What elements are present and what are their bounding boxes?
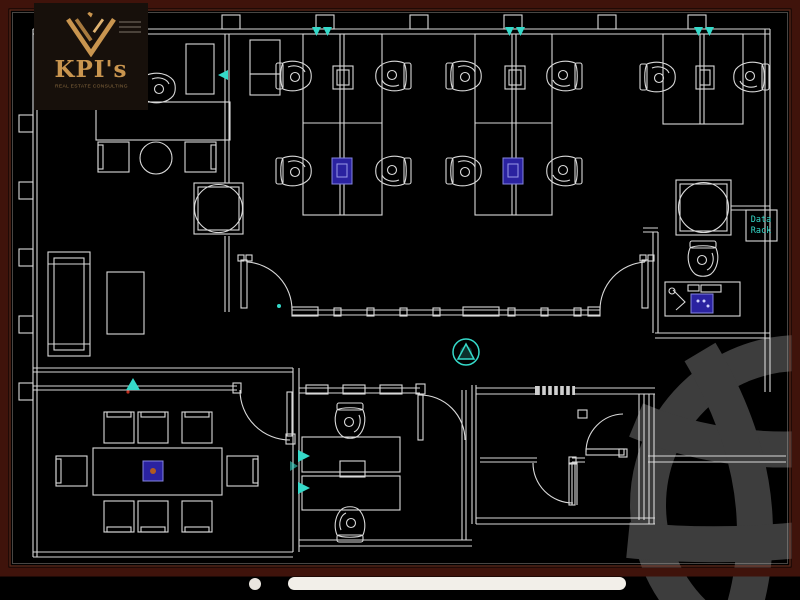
monitor-highlight	[691, 294, 713, 313]
logo-subtitle: REAL ESTATE CONSULTING	[55, 84, 128, 89]
home-indicator[interactable]	[288, 577, 626, 590]
logo-title: KPI's	[54, 58, 127, 81]
screenshot-stage: Data Rack KPI's REAL ESTATE CONSULTING	[0, 0, 800, 600]
kpi-monogram-icon	[58, 11, 124, 57]
pedestal-highlight	[332, 158, 352, 184]
data-rack-line2: Rack	[751, 226, 771, 236]
data-rack-line1: Data	[751, 215, 771, 225]
marker-dot	[277, 304, 281, 308]
marker-dot-red	[126, 390, 129, 393]
wall-vent	[535, 386, 575, 395]
data-rack-label: Data Rack	[751, 215, 771, 236]
hamburger-menu-icon	[119, 18, 141, 36]
logo: KPI's REAL ESTATE CONSULTING	[34, 3, 148, 110]
pedestal-highlight	[503, 158, 523, 184]
watermark-dot	[249, 578, 261, 590]
